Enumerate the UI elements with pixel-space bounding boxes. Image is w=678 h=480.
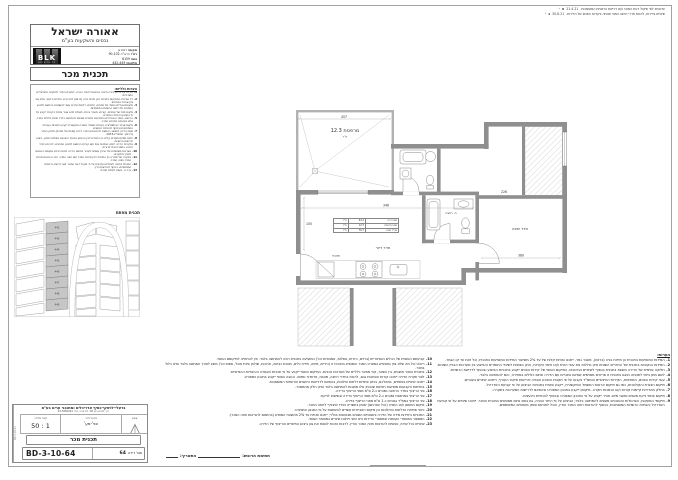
revision-row: שינויים בדירות, לרבות חדרי רחצה ושינוי ת… <box>335 12 665 16</box>
sale-note-item-num: 13. <box>426 375 432 379</box>
table-cell: מ"ר <box>334 228 349 233</box>
sale-note-item-num: 12. <box>426 370 432 374</box>
sale-note-item-num: 14. <box>426 380 432 384</box>
general-note-item: 10.מערכות משותפות של הבניין עשויות לעבור… <box>33 150 137 156</box>
sale-note-item-num: 16. <box>426 389 432 393</box>
sale-notes-list: 1.המידות המופיעות בתכנית הן מידות בניה (… <box>436 358 670 407</box>
title-block: BD-3-10-64 ברעלי-לויצקי-כסיף אדריכלים ומ… <box>12 404 148 463</box>
doors <box>301 176 500 276</box>
sale-notes-title: הערות: <box>436 352 670 357</box>
general-note-item-text: במקרה של סתירה בין התכנית לבין מפרט המכר… <box>33 156 131 162</box>
stove-icon <box>356 262 382 278</box>
sale-note-item: 18.פני הריצוף בממ"ד גבוהים כ-1 ס"מ מפני … <box>155 399 432 403</box>
sale-note-item: 22.המספור במספרי הקומות ובמספרי הדירות ה… <box>155 417 432 421</box>
sale-note-item: 10.קביעתם הסופית של הכלים הסניטריים (ברז… <box>155 357 432 361</box>
sale-note-item-text: מיקום המחסן ו/או החניה (ככל שנרכשו) יסומ… <box>307 403 424 407</box>
sale-note-item: 3.חלוקה פנימית של הדירה מוצגת בתכנית בכפ… <box>436 368 670 372</box>
general-note-item-num: 8. <box>134 137 137 143</box>
sale-note-item: 15.בחזיתות הקבועות מופיעות חזיתות שכנות;… <box>155 385 432 389</box>
sale-note-item-num: 22. <box>426 417 432 421</box>
general-note-item-num: 13. <box>132 169 137 172</box>
general-note-item: 2.כל המידות המופיעות בתכנית הינן מידות ב… <box>33 98 137 104</box>
sale-note-item-text: ריהוט וכל מה שלא צוין במפורש במפרט המכר … <box>155 362 424 370</box>
general-note-item-text: מערכות משותפות של הבניין עשויות לעבור בת… <box>33 150 131 156</box>
sale-note-item: 19.מיקום המחסן ו/או החניה (ככל שנרכשו) י… <box>155 403 432 407</box>
kitchen-label: מטבח <box>332 254 340 258</box>
sale-note-item-num: 15. <box>426 385 432 389</box>
dim-side: 105 <box>306 222 312 226</box>
general-note-item-num: 10. <box>132 150 137 156</box>
revision-row-mark: ▵ <box>545 12 546 16</box>
general-note-item-text: מיקום אביזרי אינסטלציה, נקודות חשמל, תאו… <box>33 124 133 130</box>
general-note-item-text: מיקום סופי של עמודים, קורות, מעברי צנרת,… <box>33 111 133 117</box>
sale-note-item-num: 5. <box>666 378 670 382</box>
svg-text:449: 449 <box>55 303 60 307</box>
bedroom-label: חדר שינה <box>512 226 529 231</box>
signature-block: חתימת הרוכש: התאריך: <box>150 453 270 458</box>
general-note-item-num: 3. <box>134 104 137 110</box>
sale-note-item: 23.שינויים ככל שיהיו, כפופים להוראות חוז… <box>155 422 432 426</box>
svg-text:442: 442 <box>55 226 60 230</box>
sale-note-item-text: קביעתם הסופית של הכלים הסניטריים (ברזים,… <box>216 357 424 361</box>
sale-note-item-num: 19. <box>426 403 432 407</box>
general-note-item: 7.שטח הדירה מחושב בהתאם להוראות צו מכר ד… <box>33 130 137 136</box>
sale-note-item-text: ייתכנו שינויים בפתחים, במהלכם, בכיוון פת… <box>269 380 425 384</box>
general-note-item-num: 9. <box>134 143 137 149</box>
sale-note-item-text: לשם מתן ביטוי לתנוחה הוצגו בתכנית זו פרי… <box>479 373 665 377</box>
document-title-box: תכנית מכר <box>30 67 140 81</box>
sale-note-item: 21.התכניות ביחידות מידה של הדירה והשטחים… <box>155 413 432 417</box>
sale-note-item: 8.מיקום פתחי ניקוז מזגנים ומעבי מיזוג או… <box>436 394 670 398</box>
project-header: אאורה ישראל נכסים והשקעות בע"מ מקום: רמת… <box>30 24 140 65</box>
sale-note-item-text: פני הריצוף בחדר הרחצה נמוכים כ-2 ס"מ מפנ… <box>335 389 424 393</box>
general-note-item-text: ט.ל.ח - טעות לעולם חוזרת. <box>100 169 131 172</box>
general-notes-list: 1.הדירה על כל מרכיביה תיבנה בהתאם להיתר … <box>33 91 137 172</box>
sale-note-item-num: 11. <box>426 362 432 370</box>
revision-row-mark: ▵ <box>559 7 560 11</box>
sale-note-item-num: 10. <box>426 357 432 361</box>
table-cell: 76.7 <box>348 228 365 233</box>
sale-note-item-text: התכניות ביחידות מידה של הדירה והשטחים הש… <box>229 413 425 417</box>
dim-bedroom: 380 <box>518 254 524 258</box>
apartment-number: 64 <box>120 451 126 456</box>
date-line[interactable] <box>166 454 178 458</box>
area-summary-table: שטח דירה64.4מ"רשטח מרפסת12.3מ"רסה"כ שטח7… <box>333 218 399 233</box>
sale-note-item-text: בחזיתות הקבועות מופיעות חזיתות שכנות; אל… <box>295 385 424 389</box>
sale-note-item-text: עובי קירות הפנים, המחיצות, הקירות החיצונ… <box>464 378 665 382</box>
key-plan-map: 442 443 444 445 446 447 448 449 <box>14 217 140 318</box>
svg-text:445: 445 <box>55 259 60 263</box>
general-note-item-num: 2. <box>134 98 137 104</box>
sale-note-item-num: 20. <box>426 408 432 412</box>
sale-notes-right: הערות: 1.המידות המופיעות בתכנית הן מידות… <box>436 352 670 444</box>
sale-note-item-num: 4. <box>666 373 670 377</box>
sale-note-item-text: חלוקה פנימית של הדירה מוצגת בתכנית בכפוף… <box>450 368 665 372</box>
sale-note-item-text: מיקום פתחי ניקוז מזגנים ומעבי מיזוג אווי… <box>522 394 664 398</box>
sale-note-item-num: 1. <box>666 358 670 362</box>
apartment-direction-cell: כיוון דירה: צפ'-מע' <box>60 415 121 433</box>
general-note-item: 4.מיקום סופי של עמודים, קורות, מעברי צנר… <box>33 111 137 117</box>
sale-note-item: 2.המידות הנקובות בתכנית של החדרים השונים… <box>436 363 670 367</box>
general-notes-title: הערות כלליות: <box>33 87 137 91</box>
north-cell: צפון: <box>121 415 147 433</box>
dim-terrace: 457 <box>341 115 347 119</box>
north-arrow-icon <box>128 423 142 433</box>
svg-text:443: 443 <box>55 237 60 241</box>
sale-note-item-text: מיקומי המעקות, הפרגולות והסוככים מוצגים … <box>436 399 665 407</box>
general-note-item: 6.מיקום אביזרי אינסטלציה, נקודות חשמל, ת… <box>33 124 137 130</box>
general-note-item: 13.ט.ל.ח - טעות לעולם חוזרת. <box>33 169 137 172</box>
table-row: סה"כ שטח76.7מ"ר <box>334 228 399 233</box>
general-note-item-text: ייתכנו סטיות ושינויים קלים בין התכנית לב… <box>33 137 133 143</box>
sale-note-item-num: 2. <box>666 363 670 367</box>
sale-note-item: 9.מיקומי המעקות, הפרגולות והסוככים מוצגי… <box>436 399 670 407</box>
living-room-label: חדר דיור <box>376 245 391 250</box>
general-note-item: 5.הריהוט, הציוד והאביזרים המופיעים בתכני… <box>33 117 137 123</box>
sale-note-item: 11.ריהוט וכל מה שלא צוין במפורש במפרט המ… <box>155 362 432 370</box>
sale-note-item-text: שינויים ככל שיהיו, כפופים להוראות חוזה ה… <box>259 422 425 426</box>
sale-note-item-text: כיווני פתיחת הדלתות והחלונות וכן מיקום ה… <box>294 408 424 412</box>
sale-note-item-num: 3. <box>666 368 670 372</box>
bathroom-label: ח. רחצה <box>445 211 456 215</box>
svg-text:448: 448 <box>55 292 60 296</box>
drawing-sheet: עדכונים לפי שיקול דעת המוכר ו/או דרישת ה… <box>0 0 678 480</box>
dimension-labels: 457 346 380 226 105 <box>306 115 524 258</box>
terrace-unit: מ"ר <box>343 135 348 139</box>
svg-text:444: 444 <box>55 248 60 252</box>
toilet-icon <box>426 175 433 185</box>
sale-note-item-num: 23. <box>426 422 432 426</box>
sale-note-item-num: 17. <box>426 394 432 398</box>
sale-note-item: 4.לשם מתן ביטוי לתנוחה הוצגו בתכנית זו פ… <box>436 373 670 377</box>
sale-note-item: 5.עובי קירות הפנים, המחיצות, הקירות החיצ… <box>436 378 670 382</box>
table-cell: סה"כ שטח <box>365 228 398 233</box>
general-notes: הערות כלליות: 1.הדירה על כל מרכיביה תיבנ… <box>30 84 140 198</box>
sale-note-item-text: המידות הנקובות בתכנית של החדרים השונים א… <box>437 363 665 367</box>
sale-note-item-num: 6. <box>666 383 670 387</box>
drawing-number: BD-3-10-64 <box>23 449 92 458</box>
sale-note-item-num: 21. <box>426 413 432 417</box>
svg-text:446: 446 <box>55 270 60 274</box>
key-plan-parcels-left <box>16 219 44 316</box>
terrace <box>296 110 394 192</box>
sale-note-item-text: פני הריצוף במרפסת נמוכים כ-2 ס"מ מפני הר… <box>320 394 424 398</box>
sale-note-item-text: בתכנית המכר מוצגים, בין השאר, קווי מתאר … <box>230 370 425 374</box>
revision-row-text: עדכונים לפי שיקול דעת המוכר ו/או דרישת ה… <box>580 7 665 11</box>
general-note-item-num: 1. <box>134 91 137 97</box>
revision-row-letter: ב <box>548 12 550 16</box>
sale-note-item-num: 8. <box>666 394 670 398</box>
general-note-item-text: בתקרות הדירה ייתכנו הנמכות גבס ו/או קורו… <box>33 143 133 149</box>
general-note-item-num: 12. <box>132 163 137 169</box>
general-note-item-text: מיקומם וגודלם הסופי של פתחים, חלונות, דל… <box>33 104 133 110</box>
key-plan-title: תכנית מפתח <box>84 210 140 215</box>
sale-note-item: 6.מיקום הצנרת והקולטנים, כמו גם מיקום אר… <box>436 383 670 387</box>
sale-note-item-text: פני הריצוף בממ"ד גבוהים כ-1 ס"מ מפני הרי… <box>345 399 425 403</box>
apartment-number-cell: מס' דירה 64 <box>92 448 144 459</box>
revision-table: עדכונים לפי שיקול דעת המוכר ו/או דרישת ה… <box>335 7 665 17</box>
general-note-item-text: הדירה על כל מרכיביה תיבנה בהתאם להיתר הב… <box>33 91 133 97</box>
revision-row: עדכונים לפי שיקול דעת המוכר ו/או דרישת ה… <box>335 7 665 11</box>
sale-note-item-num: 18. <box>426 399 432 403</box>
round-sink-icon <box>426 152 436 162</box>
sale-note-item-num: 7. <box>666 388 670 392</box>
general-note-item: 1.הדירה על כל מרכיביה תיבנה בהתאם להיתר … <box>33 91 137 97</box>
date-label: התאריך: <box>180 453 196 458</box>
general-note-item-text: הריהוט, הציוד והאביזרים המופיעים בתכנית … <box>33 117 133 123</box>
company-subtitle: נכסים והשקעות בע"מ <box>31 38 139 47</box>
sale-note-item: 13.לפני תקרת הדירה ייתכנו קורות והנמכות … <box>155 375 432 379</box>
toilet-icon <box>462 218 470 228</box>
company-name: אאורה ישראל <box>31 26 139 38</box>
revision-row-text: שינויים בדירות, לרבות חדרי רחצה ושינוי ת… <box>566 12 665 16</box>
general-note-item: 9.בתקרות הדירה ייתכנו הנמכות גבס ו/או קו… <box>33 143 137 149</box>
revision-row-date: 30.6.21 <box>552 12 564 16</box>
sale-note-item: 1.המידות המופיעות בתכנית הן מידות בניה (… <box>436 358 670 362</box>
sale-notes-bottom: 10.קביעתם הסופית של הכלים הסניטריים (ברז… <box>155 357 432 443</box>
blk-architects-logo: BLK ARCHITECTS <box>33 48 61 65</box>
svg-text:447: 447 <box>55 281 60 285</box>
sale-note-item: 16.פני הריצוף בחדר הרחצה נמוכים כ-2 ס"מ … <box>155 389 432 393</box>
floor-plan: 457 346 380 226 105 מרפסת 12.3 מ"ר חדר ד… <box>258 92 570 350</box>
terrace-label: מרפסת 12.3 <box>331 128 360 134</box>
parcels-line: חלקות: 442-449 <box>63 61 137 65</box>
dim-hall: 226 <box>501 190 507 194</box>
scale-value: 1 : 50 <box>22 422 59 430</box>
general-note-item: 3.מיקומם וגודלם הסופי של פתחים, חלונות, … <box>33 104 137 110</box>
scale-cell: קנה מידה: 1 : 50 <box>20 415 60 433</box>
sale-note-item: 12.בתכנית המכר מוצגים, בין השאר, קווי מת… <box>155 370 432 374</box>
general-note-item-num: 6. <box>134 124 137 130</box>
key-plan-parcels-highlighted <box>46 221 68 311</box>
fold-mark <box>370 465 426 466</box>
dim-living: 346 <box>383 204 389 208</box>
sale-note-item-text: בחלק מהדירות קיימות קורות ו/או הנמכות תק… <box>492 388 665 392</box>
drawing-title: תכנית מכר <box>26 435 141 445</box>
project-info: מקום: רמת גן רח': הרא"ה 90-102 גוש: 6159… <box>31 47 139 65</box>
general-note-item: 11.במקרה של סתירה בין התכנית לבין מפרט ה… <box>33 156 137 162</box>
buyer-signature-line[interactable] <box>198 454 240 458</box>
general-note-item-text: שטח הדירה מחושב בהתאם להוראות צו מכר דיר… <box>33 130 133 136</box>
file-reference: BD-3-10-64 <box>13 405 20 462</box>
revision-row-date: 21.4.21 <box>566 7 578 11</box>
sale-note-item: 20.כיווני פתיחת הדלתות והחלונות וכן מיקו… <box>155 408 432 412</box>
general-note-item-num: 4. <box>134 111 137 117</box>
general-note-item-num: 5. <box>134 117 137 123</box>
document-title: תכנית מכר <box>62 69 109 80</box>
sale-note-item-text: המידות המופיעות בתכנית הן מידות בניה (בר… <box>445 358 665 362</box>
sale-note-item-text: מיקום הצנרת והקולטנים, כמו גם מיקום ארונ… <box>485 383 664 387</box>
sale-note-item-text: המספור במספרי הקומות ובמספרי הדירות הינו… <box>308 417 424 421</box>
sale-note-item-text: לפני תקרת הדירה ייתכנו קורות והנמכות גבס… <box>244 375 425 379</box>
general-note-item: 8.ייתכנו סטיות ושינויים קלים בין התכנית … <box>33 137 137 143</box>
sale-note-item-num: 9. <box>666 399 670 407</box>
sale-note-item: 7.בחלק מהדירות קיימות קורות ו/או הנמכות … <box>436 388 670 392</box>
general-note-item-text: כל המידות המופיעות בתכנית הינן מידות בני… <box>33 98 133 104</box>
revision-row-letter: א <box>562 7 564 11</box>
general-note-item-num: 11. <box>132 156 137 162</box>
general-note-item-num: 7. <box>134 130 137 136</box>
general-note-item: 12.התכנית כפופה לשינויים ועדכונים על פי … <box>33 163 137 169</box>
general-note-item-text: התכנית כפופה לשינויים ועדכונים על פי שיק… <box>33 163 131 169</box>
sale-note-item: 17.פני הריצוף במרפסת נמוכים כ-2 ס"מ מפני… <box>155 394 432 398</box>
project-info-lines: מקום: רמת גן רח': הרא"ה 90-102 גוש: 6159… <box>63 48 137 65</box>
sale-note-item: 14.ייתכנו שינויים בפתחים, במהלכם, בכיוון… <box>155 380 432 384</box>
buyer-signature-label: חתימת הרוכש: <box>242 453 270 458</box>
